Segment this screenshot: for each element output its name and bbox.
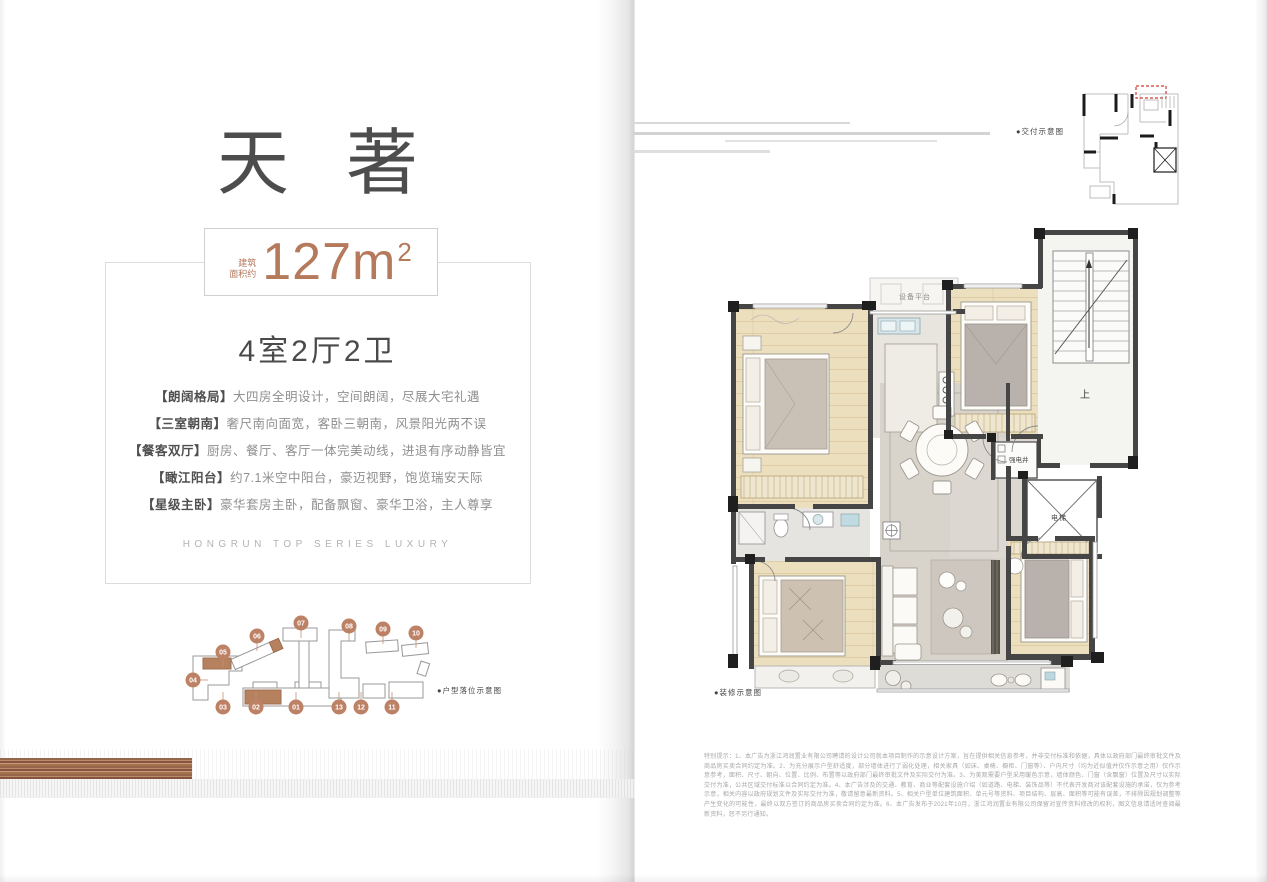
gray-texture-bar bbox=[0, 779, 635, 798]
elevator-label: 电梯 bbox=[1051, 513, 1067, 522]
bed-master bbox=[759, 576, 845, 656]
building-09 bbox=[366, 640, 399, 653]
page-title: 天著 bbox=[0, 104, 635, 209]
series-tagline: HONGRUN TOP SERIES LUXURY bbox=[0, 539, 635, 550]
wardrobe-nw bbox=[741, 476, 863, 498]
building-number: 08 bbox=[345, 624, 353, 631]
bed-ne bbox=[961, 302, 1031, 410]
building-number: 03 bbox=[219, 705, 227, 712]
building-number: 09 bbox=[379, 627, 387, 634]
building-08-13 bbox=[329, 630, 359, 698]
decorative-line bbox=[633, 150, 770, 153]
building-02-highlight bbox=[245, 690, 281, 704]
page-edge-right bbox=[1255, 0, 1267, 882]
feature-item: 【朗阔格局】大四房全明设计，空间朗阔，尽展大宅礼遇 bbox=[0, 384, 635, 411]
building-number: 01 bbox=[292, 705, 300, 712]
area-badge-prefix: 建筑 面积约 bbox=[229, 258, 256, 280]
plan-caption: ●装修示意图 bbox=[714, 687, 762, 698]
stairs-up-label: 上 bbox=[1080, 389, 1090, 401]
building-number: 04 bbox=[189, 678, 197, 685]
page-edge-bottom bbox=[0, 874, 1267, 882]
rug bbox=[931, 560, 995, 654]
sofa-back bbox=[882, 566, 893, 656]
staircase bbox=[1053, 251, 1129, 363]
delivery-caption: ●交付示意图 bbox=[1016, 126, 1064, 137]
building-number: 11 bbox=[388, 705, 396, 712]
floor-plan: 上 电梯 强电井 设备平台 bbox=[693, 226, 1151, 708]
area-value: 127m2 bbox=[262, 232, 413, 292]
mini-elevator bbox=[1154, 148, 1176, 172]
feature-item: 【瞰江阳台】约7.1米空中阳台，豪迈视野，饱览瑞安天际 bbox=[0, 465, 635, 492]
decorative-line bbox=[633, 132, 990, 135]
building-number: 10 bbox=[412, 631, 420, 638]
building-12 bbox=[363, 684, 385, 698]
feature-list: 【朗阔格局】大四房全明设计，空间朗阔，尽展大宅礼遇 【三室朝南】奢尺南向面宽，客… bbox=[0, 384, 635, 519]
building-bump bbox=[253, 682, 277, 688]
delivery-plan bbox=[1070, 82, 1192, 220]
layout-summary: 4室2厅2卫 bbox=[0, 326, 635, 370]
building-05-highlight bbox=[203, 658, 231, 669]
siteplan-caption: ●户型落位示意图 bbox=[437, 685, 502, 696]
wood-texture-bar bbox=[0, 758, 192, 779]
ac-symbol bbox=[883, 522, 900, 539]
building-number: 06 bbox=[253, 634, 261, 641]
building-number: 05 bbox=[219, 650, 227, 657]
building-07-stem bbox=[299, 641, 309, 688]
armchair bbox=[939, 572, 955, 588]
feature-item: 【三室朝南】奢尺南向面宽，客卧三朝南，风景阳光两不误 bbox=[0, 411, 635, 438]
feature-item: 【餐客双厅】厨房、餐厅、客厅一体完美动线，进退有序动静皆宜 bbox=[0, 438, 635, 465]
bay-window-cushion bbox=[833, 670, 853, 682]
bed-nw bbox=[743, 336, 829, 472]
area-badge: 建筑 面积约 127m2 bbox=[204, 228, 438, 296]
building-number: 13 bbox=[335, 705, 343, 712]
equipment-platform-label: 设备平台 bbox=[899, 292, 931, 301]
disclaimer-text: 特别提示：1、本广告为浙江鸿润置业有限公司聘请的设计公司就本项目制作的示意设计方… bbox=[704, 753, 1181, 820]
building-small bbox=[417, 661, 430, 676]
building-number: 12 bbox=[357, 705, 365, 712]
living-room bbox=[882, 560, 1000, 660]
site-plan: 01020304050607080910111213 bbox=[183, 614, 435, 718]
rug-fringe bbox=[991, 560, 1000, 654]
building-10 bbox=[402, 643, 429, 657]
decorative-line bbox=[633, 122, 850, 124]
building-number: 02 bbox=[252, 705, 260, 712]
building-number: 07 bbox=[297, 621, 305, 628]
building-11 bbox=[389, 682, 423, 698]
feature-item: 【星级主卧】豪华套房主卧，配备飘窗、豪华卫浴，主人尊享 bbox=[0, 492, 635, 519]
electric-shaft-label: 强电井 bbox=[1009, 455, 1029, 464]
bay-window-cushion bbox=[779, 670, 799, 682]
coffee-table bbox=[943, 608, 963, 628]
decorative-line bbox=[725, 140, 937, 142]
bay-window-master bbox=[755, 666, 875, 688]
